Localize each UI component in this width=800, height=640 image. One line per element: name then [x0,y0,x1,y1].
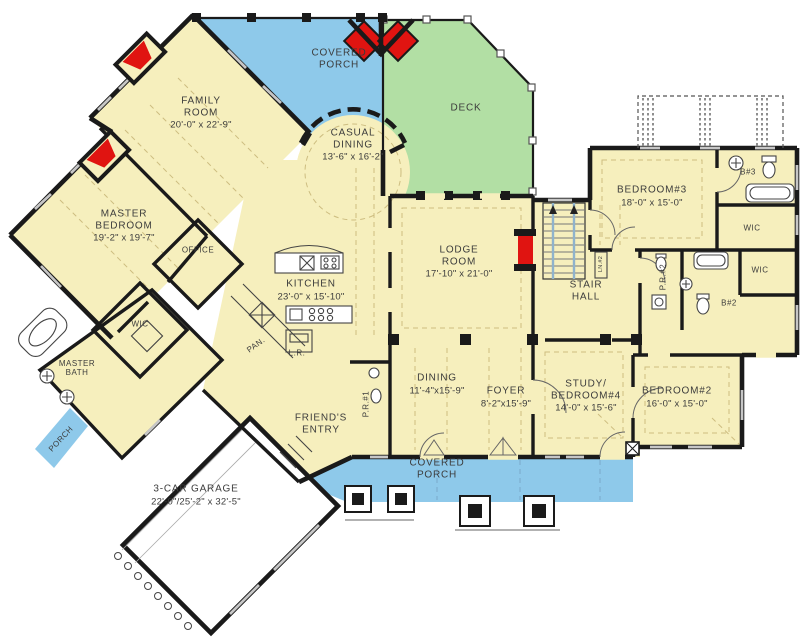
casual-dining-rotunda [296,115,410,229]
bay-window-outline [638,96,783,148]
stairs [543,203,585,279]
floor-plan-drawing [0,0,800,640]
corner-post [626,442,639,455]
side-porch-area [35,408,88,468]
floor-plan: FAMILY ROOM 20'-0" x 22'-9" COVERED PORC… [0,0,800,640]
